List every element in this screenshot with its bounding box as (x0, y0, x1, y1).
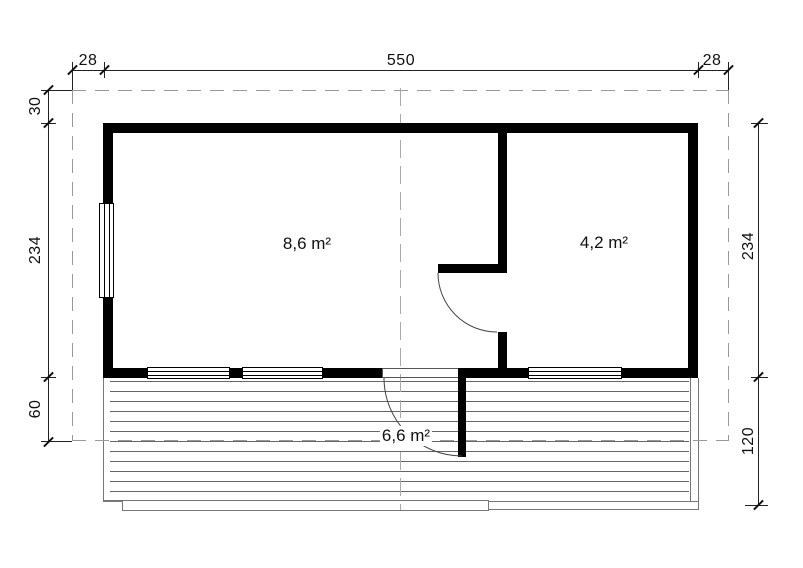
window-bottom-3 (528, 367, 622, 379)
extension-line (728, 62, 729, 90)
room-label-living: 8,6 m² (281, 234, 333, 254)
dim-label-top-right-overhang: 28 (703, 52, 722, 70)
interior-door-swing-arc (438, 273, 497, 332)
dimension-line-left (48, 90, 49, 442)
window-bottom-1 (147, 367, 230, 379)
dim-label-building-depth-left: 234 (27, 236, 45, 264)
floor-plan: 28 550 28 30 234 60 234 120 8,6 m² 4,2 m… (0, 0, 803, 568)
window-bottom-2 (242, 367, 323, 379)
dim-label-terrace-front: 60 (27, 400, 45, 419)
dimension-line-right (758, 123, 759, 506)
extension-line (72, 62, 73, 90)
dim-label-building-depth-right: 234 (740, 232, 758, 260)
dim-label-roof-overhang-left: 30 (27, 97, 45, 116)
dim-label-top-left-overhang: 28 (79, 52, 98, 70)
dim-label-building-width: 550 (387, 52, 415, 70)
window-left (99, 203, 114, 298)
dimension-line-top (72, 70, 729, 71)
room-label-terrace: 6,6 m² (380, 426, 432, 446)
room-label-side-room: 4,2 m² (578, 233, 630, 253)
door-swing-arcs (0, 0, 803, 568)
dim-label-terrace-depth: 120 (740, 427, 758, 455)
